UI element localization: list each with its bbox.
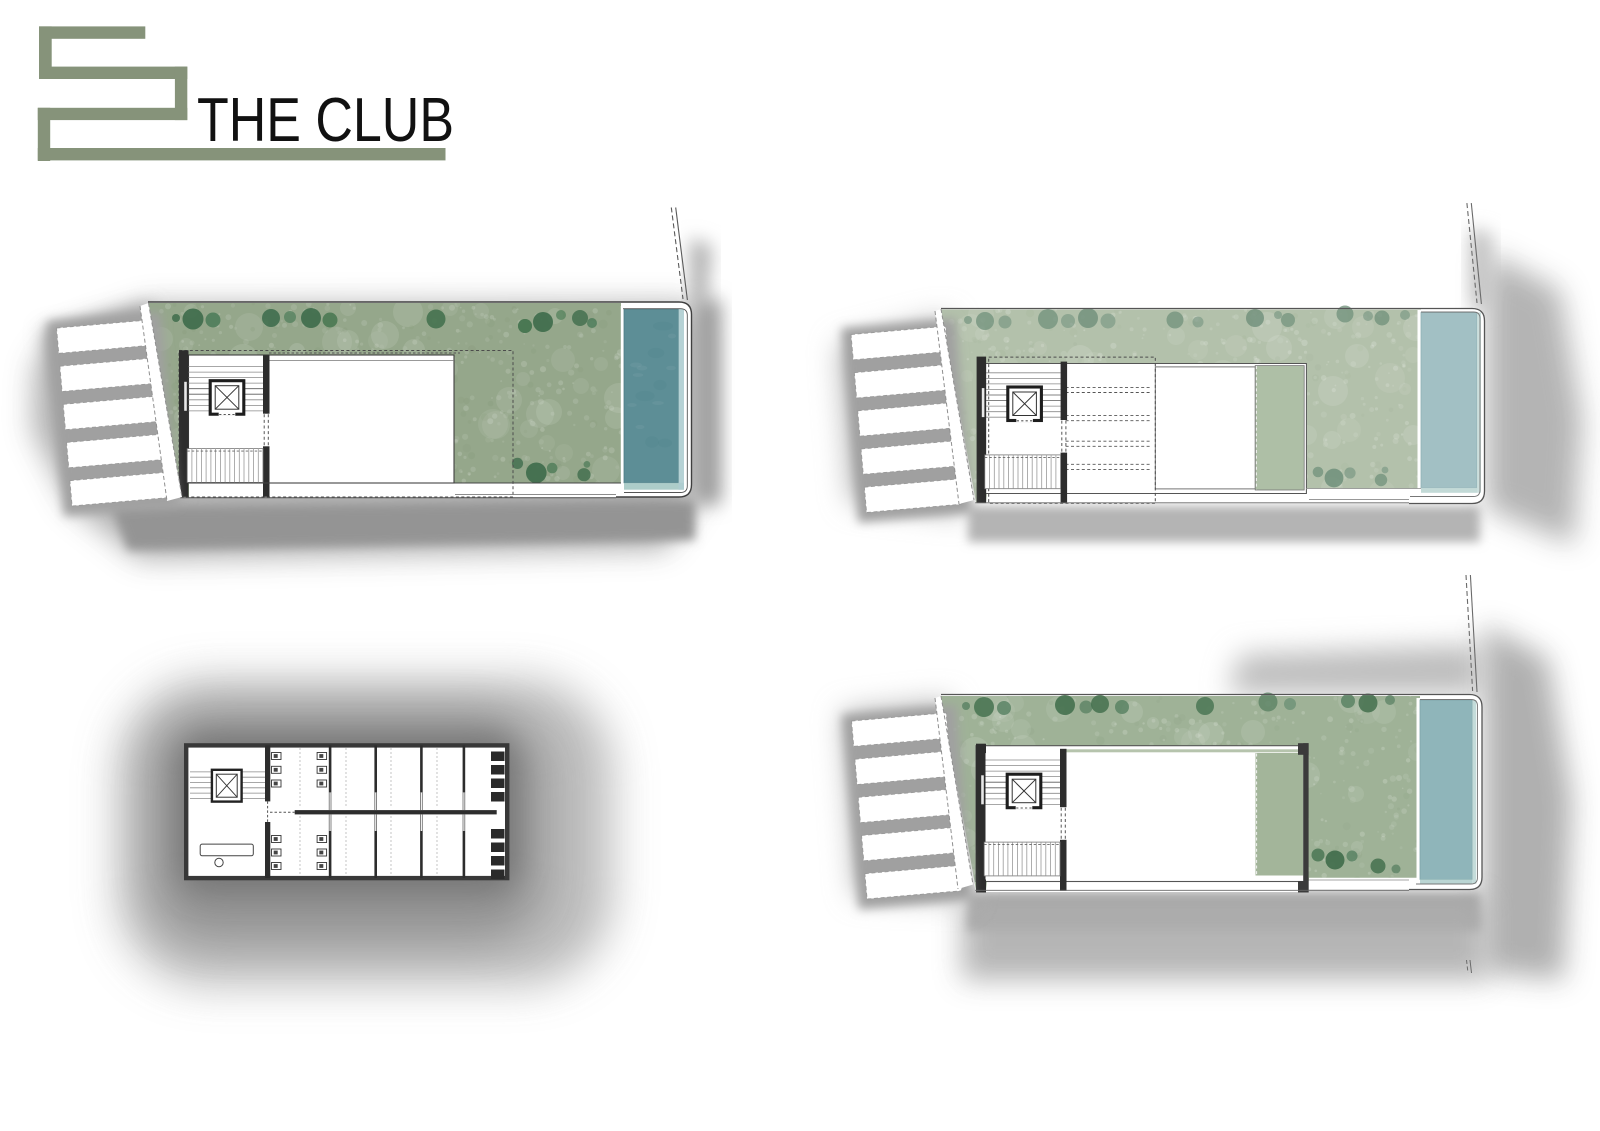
svg-text:THE CLUB: THE CLUB [197, 86, 454, 155]
